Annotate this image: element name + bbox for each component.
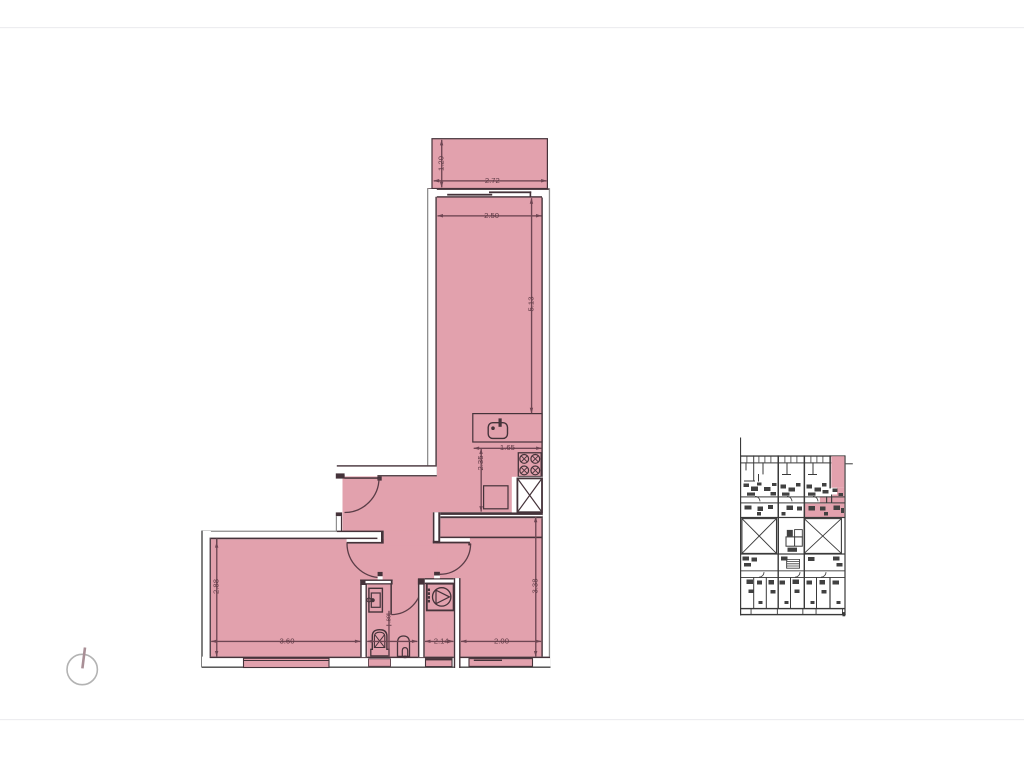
svg-text:2.14: 2.14 — [434, 636, 450, 645]
svg-text:2.35: 2.35 — [476, 456, 485, 471]
svg-text:2.88: 2.88 — [212, 579, 221, 594]
svg-text:1.20: 1.20 — [437, 156, 446, 171]
svg-text:.80: .80 — [387, 615, 393, 623]
svg-text:2.00: 2.00 — [494, 636, 509, 645]
svg-text:2.50: 2.50 — [484, 211, 499, 220]
svg-text:1.65: 1.65 — [500, 443, 515, 452]
svg-text:5.13: 5.13 — [526, 297, 535, 312]
svg-text:2.72: 2.72 — [485, 176, 500, 185]
svg-text:3.38: 3.38 — [531, 579, 540, 594]
svg-text:3.60: 3.60 — [280, 636, 295, 645]
